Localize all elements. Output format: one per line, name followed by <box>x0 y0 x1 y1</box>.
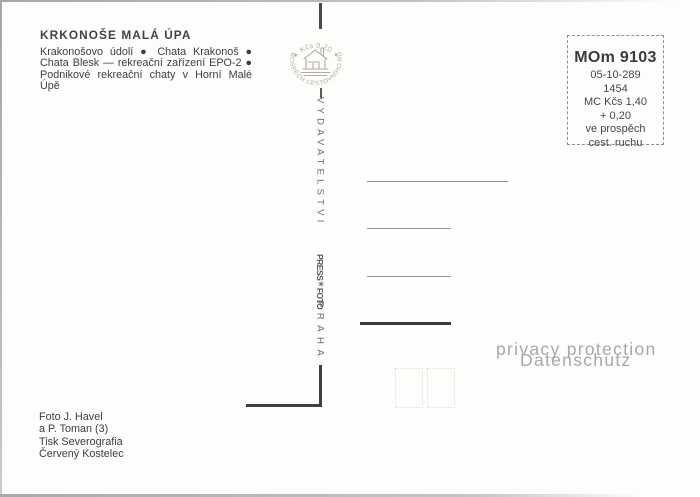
imprint-line-4: Červený Kostelec <box>39 448 124 460</box>
code-line-1: 05-10-289 <box>568 69 663 83</box>
address-line-2 <box>367 228 451 229</box>
caption-block: KRKONOŠE MALÁ ÚPA Krakonošovo údolí ● Ch… <box>40 28 252 93</box>
address-line-4 <box>360 322 451 325</box>
publisher-city-vertical: PRAHA <box>315 301 326 361</box>
code-line-3: MC Kčs 1,40 <box>568 96 663 110</box>
imprint-line-3: Tisk Severografia <box>39 436 124 448</box>
divider-line-bottom <box>319 365 322 407</box>
imprint-block: Foto J. Havel a P. Toman (3) Tisk Severo… <box>39 411 124 461</box>
scan-edge-left <box>0 0 2 497</box>
imprint-line-2: a P. Toman (3) <box>39 423 124 435</box>
code-line-5: ve prospěch <box>568 123 663 137</box>
code-line-4: + 0,20 <box>568 110 663 124</box>
postcard-back: KRKONOŠE MALÁ ÚPA Krakonošovo údolí ● Ch… <box>0 0 700 497</box>
scan-edge-top <box>0 0 697 2</box>
caption-line-3: Podnikové rekreační chaty v Horní Malé Ú… <box>40 70 252 93</box>
catalog-code: MOm 9103 <box>568 49 663 67</box>
imprint-line-1: Foto J. Havel <box>39 411 124 423</box>
dotted-placeholder-box-right <box>427 368 455 408</box>
pressfoto-star-icon: ✳ <box>317 280 324 288</box>
catalog-code-box: MOm 9103 05-10-289 1454 MC Kčs 1,40 + 0,… <box>567 35 664 145</box>
publisher-name-vertical: VYDAVATELSTVI <box>315 97 326 227</box>
pressfoto-press-label: PRESS <box>315 254 325 280</box>
watermark-line2: Datenschutz <box>520 350 632 371</box>
divider-line-top <box>319 3 322 29</box>
code-line-6: cest. ruchu <box>568 137 663 151</box>
scan-edge-bottom <box>0 494 640 497</box>
divider-corner-line <box>246 404 321 407</box>
address-line-3 <box>367 276 451 277</box>
postage-paid-stamp: ✶ Kčs 0,20 ✶ VE PROSPĚCH CESTOVNÍHO RUCH… <box>284 28 348 92</box>
address-line-1 <box>367 181 508 182</box>
code-line-2: 1454 <box>568 83 663 97</box>
postcard-title: KRKONOŠE MALÁ ÚPA <box>40 28 252 42</box>
dotted-placeholder-box-left <box>395 368 423 408</box>
